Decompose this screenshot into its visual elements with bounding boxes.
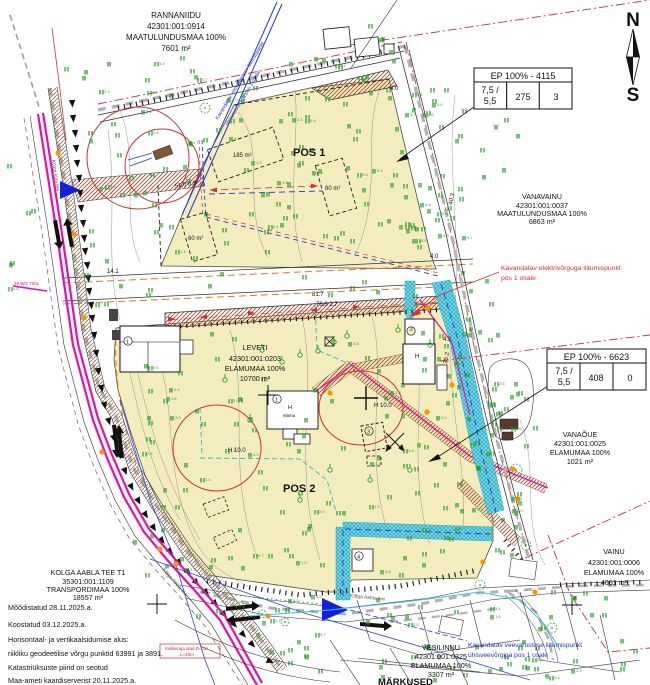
svg-text:H: H <box>415 354 419 360</box>
svg-text:1.6: 1.6 <box>495 614 501 619</box>
svg-text:Kavandatav elektrivõrguga liit: Kavandatav elektrivõrguga liitumispunkt <box>501 265 621 272</box>
svg-text:4.7: 4.7 <box>375 461 381 466</box>
svg-text:0: 0 <box>627 373 632 383</box>
svg-text:Maa-ameti kaardiserverist 20.1: Maa-ameti kaardiserverist 20.11.2025.a. <box>8 676 136 685</box>
svg-text:H: H <box>288 405 292 411</box>
svg-text:4.0: 4.0 <box>390 86 399 92</box>
svg-text:4.9: 4.9 <box>443 233 449 238</box>
svg-text:Kavandatav veevarustuse liitum: Kavandatav veevarustuse liitumispunkt <box>468 642 582 649</box>
svg-text:4.8: 4.8 <box>13 286 19 291</box>
svg-text:2.7: 2.7 <box>340 63 346 68</box>
svg-text:3.0: 3.0 <box>233 398 239 403</box>
svg-text:2.5: 2.5 <box>221 608 227 613</box>
svg-text:3.7: 3.7 <box>460 526 466 531</box>
svg-text:elamu: elamu <box>283 413 296 418</box>
svg-text:VAINU: VAINU <box>603 547 624 556</box>
svg-text:1.7: 1.7 <box>202 77 208 82</box>
svg-text:185 m²: 185 m² <box>233 153 252 159</box>
svg-text:1.9: 1.9 <box>408 448 414 453</box>
svg-text:2: 2 <box>410 327 413 333</box>
svg-text:1.3: 1.3 <box>482 465 488 470</box>
svg-text:0.7: 0.7 <box>320 632 326 637</box>
svg-text:6863 m²: 6863 m² <box>529 217 556 226</box>
svg-text:2.5: 2.5 <box>147 451 153 456</box>
svg-text:42301:001:0914: 42301:001:0914 <box>147 22 205 31</box>
svg-text:Horisontaal- ja vertikaalsidum: Horisontaal- ja vertikaalsidumise alus: <box>8 635 129 644</box>
svg-text:3: 3 <box>367 430 370 436</box>
svg-text:4.8: 4.8 <box>385 569 391 574</box>
svg-text:3.3: 3.3 <box>576 668 582 673</box>
svg-text:1.2: 1.2 <box>275 618 281 623</box>
svg-text:1.7: 1.7 <box>193 140 199 145</box>
svg-text:4.0: 4.0 <box>232 97 238 102</box>
svg-text:0.6: 0.6 <box>153 365 159 370</box>
svg-text:1.4: 1.4 <box>180 249 186 254</box>
svg-text:3: 3 <box>553 92 558 102</box>
svg-text:4.2: 4.2 <box>443 337 452 343</box>
svg-text:POS 1: POS 1 <box>293 147 325 159</box>
svg-text:pos 1 osale: pos 1 osale <box>501 275 536 282</box>
svg-text:KOLGA AABLA TEE T1: KOLGA AABLA TEE T1 <box>51 568 126 577</box>
svg-text:0.8: 0.8 <box>362 172 368 177</box>
svg-text:18557 m²: 18557 m² <box>73 593 104 602</box>
svg-text:42301:001:0006: 42301:001:0006 <box>588 558 640 567</box>
svg-text:14.1: 14.1 <box>107 269 119 275</box>
svg-text:1021 m²: 1021 m² <box>567 457 594 466</box>
svg-text:3.0: 3.0 <box>175 415 181 420</box>
svg-text:riikliku geodeetilise võrgu pu: riikliku geodeetilise võrgu punktid 6399… <box>8 649 163 658</box>
svg-text:3.7: 3.7 <box>410 112 416 117</box>
svg-text:408: 408 <box>588 373 603 383</box>
svg-text:275: 275 <box>515 92 530 102</box>
svg-text:POS 2: POS 2 <box>283 483 315 495</box>
svg-text:3.3: 3.3 <box>395 390 401 395</box>
svg-text:1.9: 1.9 <box>104 186 110 191</box>
svg-text:7,5 /: 7,5 / <box>481 85 499 95</box>
svg-text:ELAMUMAA 100%: ELAMUMAA 100% <box>411 661 472 670</box>
svg-text:ELAMUMAA 100%: ELAMUMAA 100% <box>584 568 645 577</box>
svg-text:MAATULUNDUSMAA 100%: MAATULUNDUSMAA 100% <box>126 33 226 42</box>
svg-text:VANAVAINU: VANAVAINU <box>522 192 562 201</box>
svg-text:Katastriüksuste piirid on seot: Katastriüksuste piirid on seotud <box>8 663 108 672</box>
svg-text:ELAMUMAA 100%: ELAMUMAA 100% <box>225 364 286 373</box>
svg-text:4.0: 4.0 <box>430 254 439 260</box>
svg-text:0.5: 0.5 <box>413 622 419 627</box>
svg-text:2.5: 2.5 <box>417 92 423 97</box>
svg-text:2.3: 2.3 <box>104 89 110 94</box>
svg-text:1: 1 <box>275 398 278 404</box>
svg-text:2.5: 2.5 <box>190 567 196 572</box>
svg-text:1: 1 <box>126 340 129 346</box>
svg-text:4.4: 4.4 <box>554 675 560 680</box>
svg-text:3.9: 3.9 <box>316 594 322 599</box>
svg-text:EP 100% - 6623: EP 100% - 6623 <box>564 352 629 362</box>
svg-text:80 m²: 80 m² <box>325 186 340 192</box>
svg-text:76,6 2,7: 76,6 2,7 <box>316 302 338 308</box>
svg-text:H 10.0: H 10.0 <box>374 403 392 409</box>
svg-text:S: S <box>627 85 640 106</box>
svg-text:1.8: 1.8 <box>317 170 323 175</box>
svg-text:0.7: 0.7 <box>258 553 264 558</box>
svg-text:2.6: 2.6 <box>499 381 505 386</box>
svg-text:0.2: 0.2 <box>441 415 447 420</box>
svg-text:4.3: 4.3 <box>110 184 116 189</box>
svg-text:60 m²: 60 m² <box>188 236 203 242</box>
svg-text:N: N <box>626 10 640 31</box>
svg-text:1.5: 1.5 <box>502 426 508 431</box>
svg-text:0.9: 0.9 <box>437 102 443 107</box>
svg-text:42301:001:0325: 42301:001:0325 <box>415 652 467 661</box>
svg-text:3.4: 3.4 <box>495 606 501 611</box>
svg-text:3.0: 3.0 <box>517 508 523 513</box>
svg-text:1.6: 1.6 <box>171 396 177 401</box>
svg-text:1.5: 1.5 <box>389 395 395 400</box>
svg-text:3.8: 3.8 <box>353 341 359 346</box>
svg-text:0.9: 0.9 <box>174 387 180 392</box>
svg-text:5,5: 5,5 <box>558 377 571 387</box>
svg-text:4.8: 4.8 <box>310 118 316 123</box>
svg-text:7601 m²: 7601 m² <box>161 44 191 53</box>
svg-text:2.6: 2.6 <box>428 112 434 117</box>
svg-text:42301:001:0025: 42301:001:0025 <box>554 439 606 448</box>
svg-text:3.1: 3.1 <box>146 109 152 114</box>
svg-text:H 10.0: H 10.0 <box>228 448 246 454</box>
svg-text:ühisveevõrgiga pos 1 osale: ühisveevõrgiga pos 1 osale <box>468 652 548 659</box>
svg-text:1.6: 1.6 <box>516 426 522 431</box>
svg-text:4: 4 <box>357 555 360 561</box>
svg-text:4.4: 4.4 <box>425 202 431 207</box>
svg-text:4.1: 4.1 <box>273 224 279 229</box>
svg-text:VESILINNU: VESILINNU <box>422 643 460 652</box>
svg-text:Koostatud 03.12.2025.a.: Koostatud 03.12.2025.a. <box>8 620 86 629</box>
svg-text:3.4: 3.4 <box>159 61 165 66</box>
svg-text:MÄRKUSED: MÄRKUSED <box>378 677 433 685</box>
svg-text:7,5 /: 7,5 / <box>555 366 573 376</box>
svg-text:ELAMUMAA 100%: ELAMUMAA 100% <box>550 448 611 457</box>
svg-text:L=40m: L=40m <box>180 652 194 657</box>
svg-text:0.1: 0.1 <box>377 168 383 173</box>
svg-text:3.3: 3.3 <box>152 90 158 95</box>
svg-text:4.7: 4.7 <box>467 235 473 240</box>
svg-text:EP 100% - 4115: EP 100% - 4115 <box>491 71 556 81</box>
svg-text:1.0: 1.0 <box>301 560 307 565</box>
svg-text:42301:001:0203: 42301:001:0203 <box>229 354 281 363</box>
svg-text:1.9: 1.9 <box>516 496 522 501</box>
svg-text:1.9: 1.9 <box>374 504 380 509</box>
svg-text:4.3: 4.3 <box>253 452 259 457</box>
svg-text:1.5: 1.5 <box>153 130 159 135</box>
svg-text:Mõõdistatud 28.11.2025.a.: Mõõdistatud 28.11.2025.a. <box>8 603 93 612</box>
svg-text:VANAÕUE: VANAÕUE <box>563 430 598 439</box>
svg-text:1.9: 1.9 <box>256 160 262 165</box>
svg-text:2.0: 2.0 <box>319 509 325 514</box>
svg-text:0.9: 0.9 <box>442 211 448 216</box>
svg-text:10700 m²: 10700 m² <box>240 374 271 383</box>
svg-text:5,5: 5,5 <box>484 96 497 106</box>
svg-text:1.4: 1.4 <box>205 477 211 482</box>
svg-text:3.0: 3.0 <box>293 598 299 603</box>
svg-text:3.4: 3.4 <box>297 117 303 122</box>
svg-text:3.3: 3.3 <box>234 136 240 141</box>
svg-text:4.8: 4.8 <box>282 180 288 185</box>
svg-text:4061 m²: 4061 m² <box>601 578 628 587</box>
svg-text:81.7: 81.7 <box>312 292 324 298</box>
svg-text:0.2: 0.2 <box>477 507 483 512</box>
svg-text:RANNANIIDU: RANNANIIDU <box>151 11 201 20</box>
svg-text:1.2: 1.2 <box>427 527 433 532</box>
svg-text:LEVETI: LEVETI <box>243 343 268 352</box>
svg-text:4.5: 4.5 <box>421 238 427 243</box>
